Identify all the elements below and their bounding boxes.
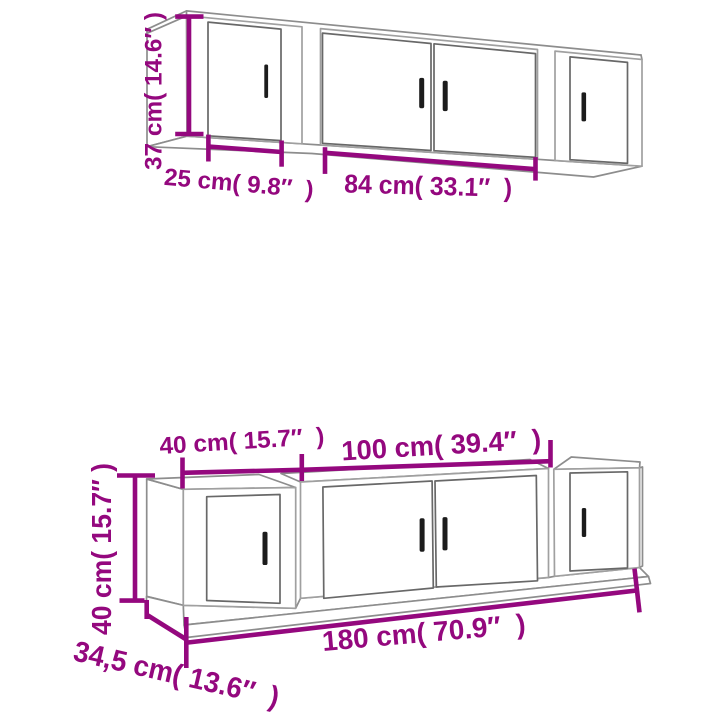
svg-text:34,5 cm( 13.6″ ): 34,5 cm( 13.6″ ) [70, 636, 282, 714]
svg-text:84 cm( 33.1″ ): 84 cm( 33.1″ ) [344, 169, 513, 203]
svg-text:25 cm( 9.8″ ): 25 cm( 9.8″ ) [163, 164, 315, 204]
svg-text:40 cm( 15.7″ ): 40 cm( 15.7″ ) [86, 463, 117, 635]
svg-text:37 cm( 14.6″ ): 37 cm( 14.6″ ) [141, 12, 168, 170]
